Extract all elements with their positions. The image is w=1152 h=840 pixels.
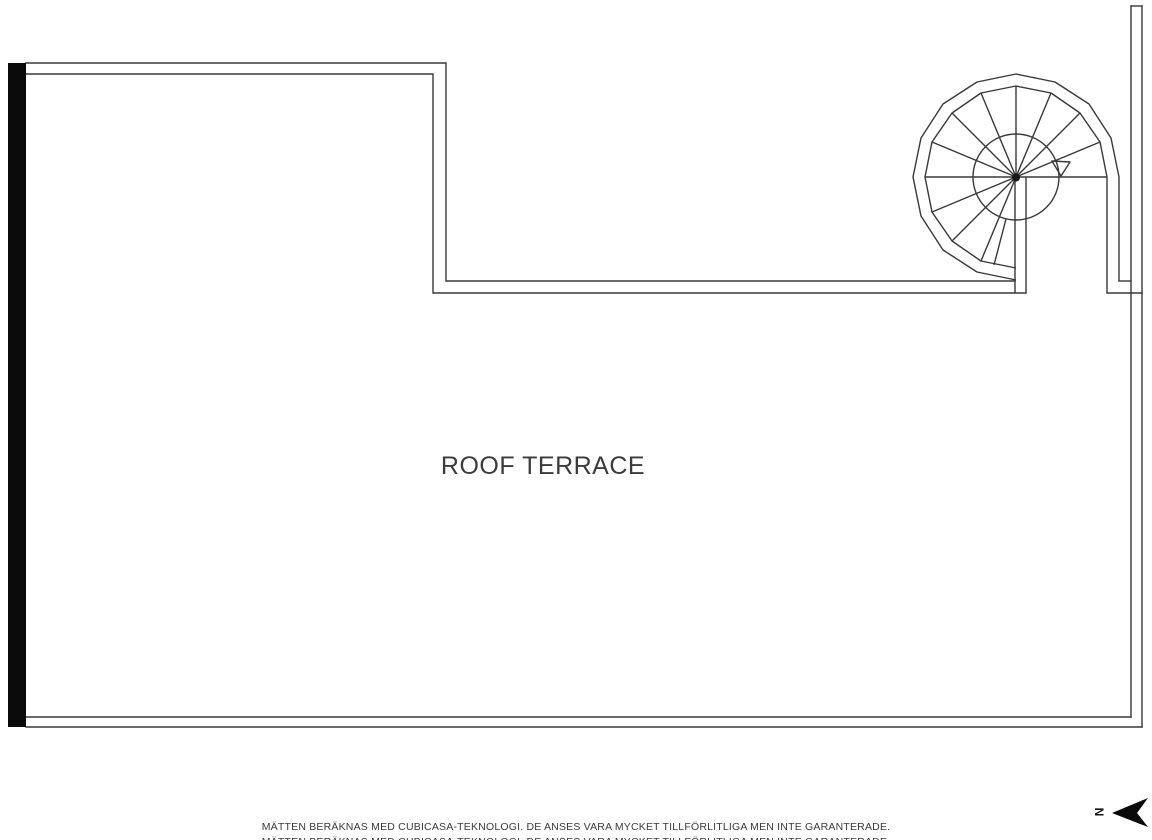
north-arrow-icon bbox=[1112, 798, 1148, 827]
stair-direction-arrow-icon bbox=[1052, 161, 1070, 176]
floor-plan-page: ROOF TERRACE MÄTTEN BERÄKNAS MED CUBICAS… bbox=[0, 0, 1152, 840]
terrace-walls bbox=[26, 6, 1142, 727]
floor-plan-drawing bbox=[0, 0, 1152, 840]
wall-top-step-outer bbox=[26, 63, 1015, 281]
spiral-staircase bbox=[913, 74, 1119, 293]
stair-center-post bbox=[1012, 174, 1020, 182]
room-label: ROOF TERRACE bbox=[441, 452, 645, 481]
stairwell-wall-stub bbox=[1015, 177, 1026, 293]
disclaimer-text: MÄTTEN BERÄKNAS MED CUBICASA-TEKNOLOGI. … bbox=[262, 821, 891, 833]
disclaimer-text-line2: MÄTTEN BERÄKNAS MED CUBICASA-TEKNOLOGI. … bbox=[262, 836, 891, 840]
left-solid-wall bbox=[8, 63, 26, 727]
north-label: N bbox=[1091, 804, 1107, 820]
wall-top-step-inner bbox=[26, 74, 1026, 293]
